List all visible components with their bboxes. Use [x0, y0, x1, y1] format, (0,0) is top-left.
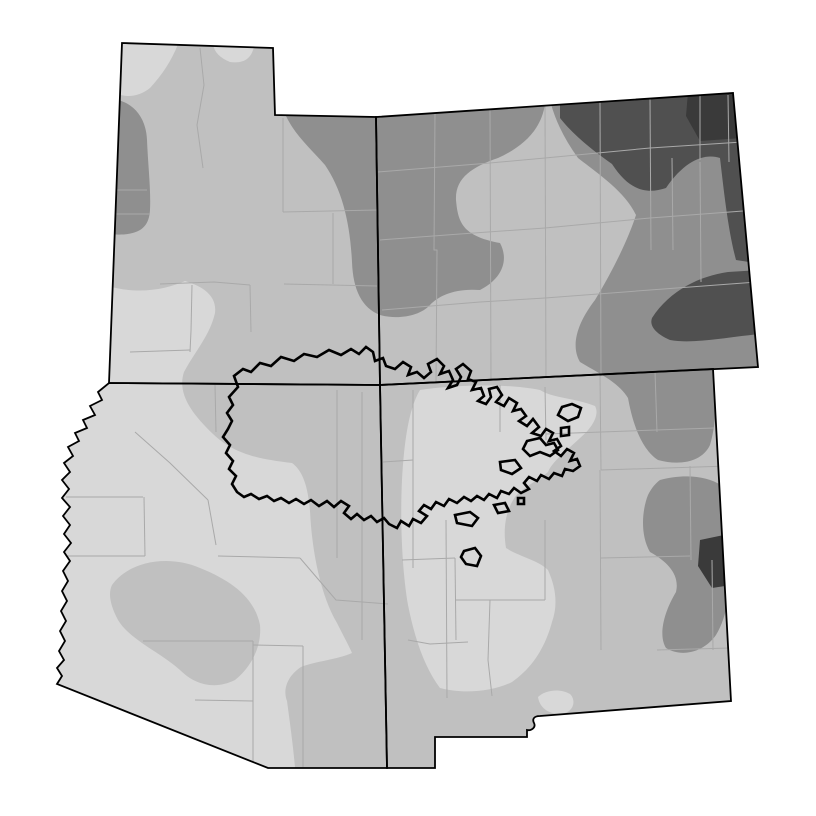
shade-regions-layer	[0, 0, 816, 816]
map-frame	[0, 0, 816, 816]
map-canvas	[0, 0, 816, 816]
